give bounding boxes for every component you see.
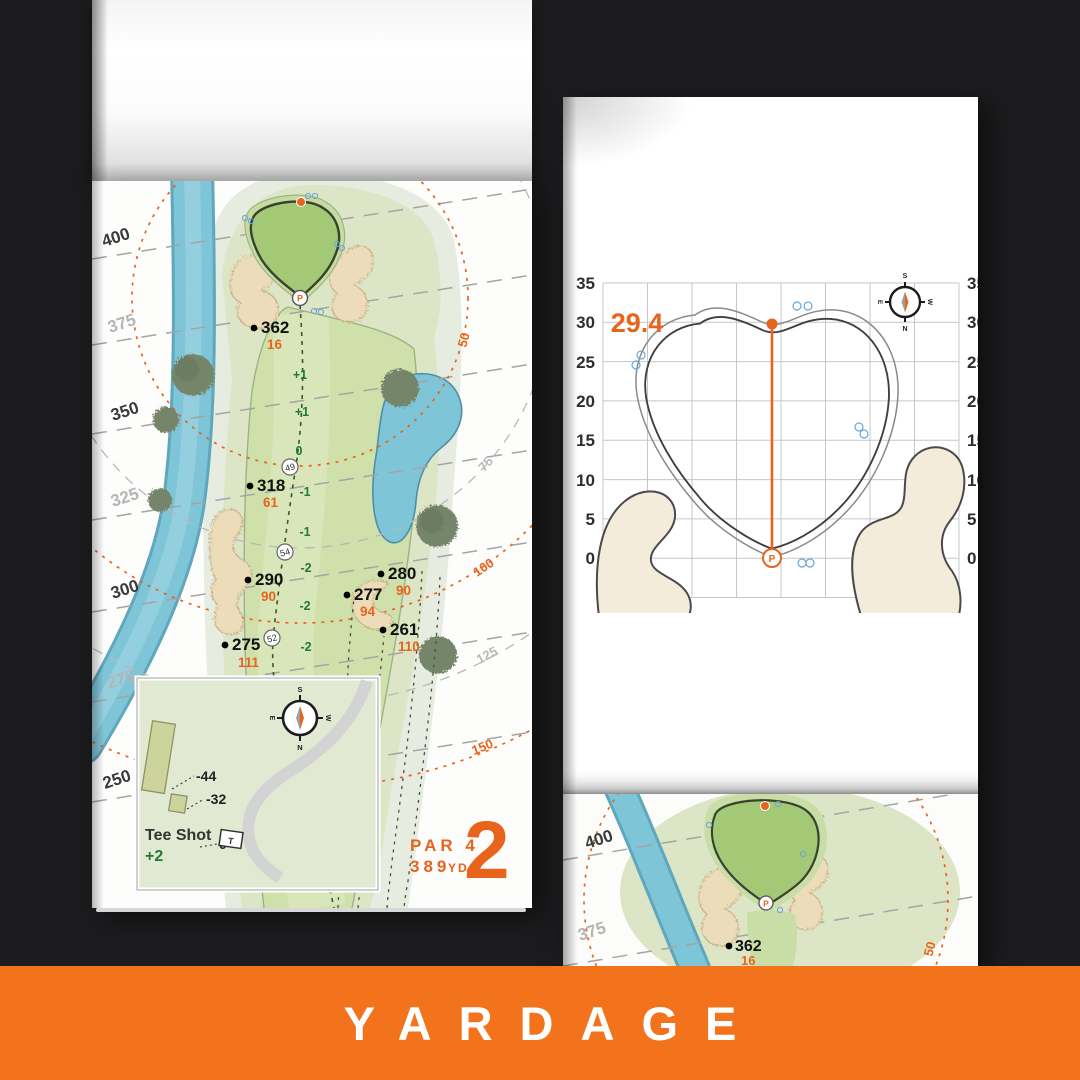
compass-n: N [297, 743, 302, 752]
compass-s: S [903, 273, 908, 280]
edge-label: 375 [105, 310, 138, 337]
preview-aim-dot [761, 802, 770, 811]
measurement-value: 29.4 [611, 308, 664, 338]
carry-value: 290 [255, 570, 283, 589]
plot-pin-letter: P [769, 554, 776, 565]
compass: S N E W [876, 273, 933, 333]
carry-value: 275 [232, 635, 260, 654]
green-plot: P 29.4 35 30 25 20 15 10 [576, 273, 978, 619]
pin-marker: P [293, 291, 308, 306]
edge-label: 250 [100, 766, 133, 793]
pin-letter: P [297, 294, 303, 304]
river [92, 181, 194, 743]
svg-text:35: 35 [967, 274, 978, 293]
svg-text:0: 0 [296, 444, 303, 458]
yardage-book-scene: P 400 375 350 325 300 275 250 50 [0, 0, 1080, 1080]
carry-value: 318 [257, 476, 285, 495]
svg-text:0: 0 [586, 549, 595, 568]
svg-text:35: 35 [576, 274, 595, 293]
svg-text:5: 5 [967, 510, 976, 529]
svg-text:0: 0 [967, 549, 976, 568]
svg-text:10: 10 [576, 471, 595, 490]
svg-text:-1: -1 [299, 485, 310, 499]
arc-labels: 50 75 100 125 150 [455, 331, 500, 758]
hole-number: 2 [464, 805, 510, 896]
to-pin-value: 61 [263, 495, 279, 510]
compass-w: W [324, 715, 331, 722]
to-pin-value: 94 [360, 604, 376, 619]
svg-text:10: 10 [967, 471, 978, 490]
hole-map: P 400 375 350 325 300 275 250 50 [92, 181, 532, 908]
tee-offset-right: -32 [206, 791, 226, 807]
carry-value: 362 [261, 318, 289, 337]
right-book-page[interactable]: P 29.4 35 30 25 20 15 10 [563, 97, 978, 966]
next-page-preview[interactable]: P 400 375 362 16 50 [563, 718, 978, 966]
preview-carry-dot [726, 943, 733, 950]
left-book-page-stack-edge [96, 908, 526, 912]
svg-text:-2: -2 [300, 640, 311, 654]
green-detail-page: P 29.4 35 30 25 20 15 10 [563, 97, 978, 966]
compass-n: N [902, 326, 907, 333]
svg-text:-2: -2 [299, 599, 310, 613]
svg-text:+1: +1 [293, 368, 307, 382]
yardage-banner-label: YARDAGE [317, 996, 764, 1051]
compass-e: E [876, 300, 883, 305]
left-book-flipped-page[interactable] [92, 0, 532, 181]
edge-label: 400 [99, 224, 132, 251]
svg-text:15: 15 [576, 431, 595, 450]
compass-s: S [297, 685, 302, 694]
to-pin-value: 110 [398, 639, 420, 654]
arc-label: 125 [474, 643, 500, 666]
carry-value: 277 [354, 585, 382, 604]
svg-text:+1: +1 [295, 405, 309, 419]
to-pin-value: 90 [396, 583, 411, 598]
arc-label: 50 [455, 331, 473, 349]
svg-text:25: 25 [967, 353, 978, 372]
svg-text:20: 20 [967, 392, 978, 411]
yardage-banner: YARDAGE [0, 966, 1080, 1080]
svg-text:15: 15 [967, 431, 978, 450]
tee-shot-title: Tee Shot [145, 827, 212, 844]
to-pin-value: 111 [238, 655, 260, 670]
svg-text:-2: -2 [300, 561, 311, 575]
svg-text:20: 20 [576, 392, 595, 411]
compass-w: W [926, 299, 933, 306]
edge-label: 325 [108, 484, 141, 511]
axis-labels-left: 35 30 25 20 15 10 5 0 [576, 274, 595, 568]
svg-text:-1: -1 [299, 525, 310, 539]
aim-dot [297, 198, 306, 207]
svg-text:P: P [763, 899, 769, 909]
carry-value: 280 [388, 564, 416, 583]
arc-label: 100 [470, 555, 496, 580]
tee-shot-score: +2 [145, 848, 163, 865]
left-book-hole-map-page[interactable]: P 400 375 350 325 300 275 250 50 [92, 181, 532, 908]
svg-text:5: 5 [586, 510, 595, 529]
svg-text:25: 25 [576, 353, 595, 372]
svg-text:30: 30 [576, 313, 595, 332]
edge-label: 350 [108, 398, 141, 425]
tee-offset-left: -44 [196, 768, 216, 784]
hole-info: PAR 4 389 YD 2 [410, 805, 510, 896]
axis-labels-right: 35 30 25 20 15 10 5 0 [967, 274, 978, 568]
tee-shot-inset: -44 -32 0 T Tee Shot +2 [137, 678, 378, 890]
carry-value: 261 [390, 620, 418, 639]
preview-to-pin: 16 [741, 953, 755, 966]
to-pin-value: 16 [267, 337, 283, 352]
preview-pin: P [759, 896, 773, 910]
hole-yards: 389 [410, 857, 450, 876]
tee-marker: T [219, 830, 243, 849]
compass-e: E [268, 716, 275, 721]
svg-text:30: 30 [967, 313, 978, 332]
page-fold-shadow [563, 769, 978, 794]
to-pin-value: 90 [261, 589, 276, 604]
